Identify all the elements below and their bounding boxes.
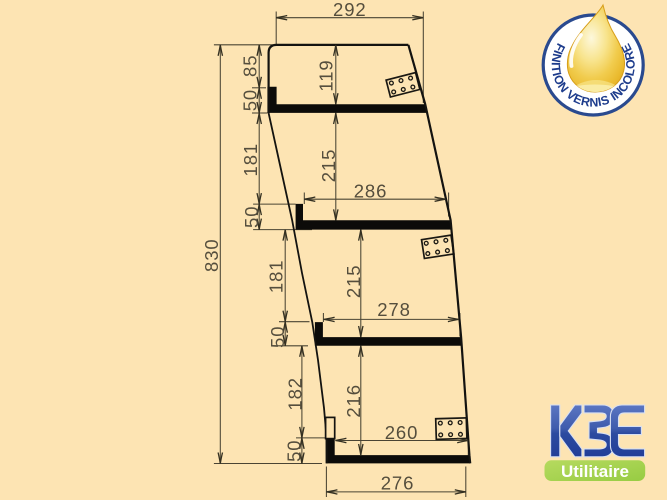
svg-text:215: 215 bbox=[343, 265, 364, 299]
svg-text:182: 182 bbox=[285, 377, 306, 411]
svg-text:50: 50 bbox=[267, 326, 288, 348]
svg-text:215: 215 bbox=[318, 149, 339, 183]
svg-text:292: 292 bbox=[333, 0, 367, 20]
svg-text:119: 119 bbox=[316, 59, 337, 91]
svg-text:181: 181 bbox=[240, 143, 261, 177]
svg-text:216: 216 bbox=[343, 384, 364, 418]
svg-text:278: 278 bbox=[377, 299, 411, 320]
svg-text:260: 260 bbox=[385, 422, 419, 443]
svg-text:276: 276 bbox=[381, 472, 415, 493]
svg-text:Utilitaire: Utilitaire bbox=[561, 462, 629, 481]
svg-text:50: 50 bbox=[239, 89, 260, 111]
svg-text:50: 50 bbox=[283, 440, 304, 462]
svg-text:286: 286 bbox=[354, 181, 388, 202]
svg-text:50: 50 bbox=[241, 206, 262, 228]
svg-text:181: 181 bbox=[266, 260, 287, 294]
svg-text:85: 85 bbox=[239, 55, 260, 77]
svg-text:830: 830 bbox=[201, 238, 222, 272]
